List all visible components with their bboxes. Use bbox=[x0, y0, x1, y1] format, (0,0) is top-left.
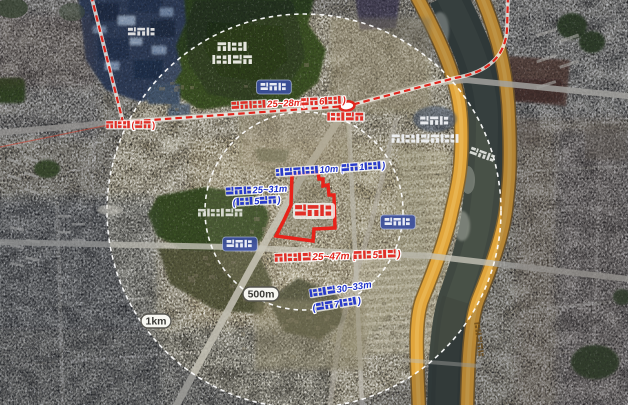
svg-text:500m: 500m bbox=[248, 289, 275, 301]
svg-text:(: ( bbox=[132, 120, 135, 130]
svg-text:): ) bbox=[276, 194, 281, 205]
svg-text:1km: 1km bbox=[145, 316, 166, 328]
svg-text:): ) bbox=[341, 95, 346, 106]
svg-text:): ) bbox=[381, 160, 386, 170]
svg-text:25~31m: 25~31m bbox=[251, 183, 287, 196]
svg-text:): ) bbox=[152, 120, 155, 130]
svg-text:25~47m (: 25~47m ( bbox=[311, 251, 357, 264]
svg-text:1: 1 bbox=[359, 162, 365, 172]
